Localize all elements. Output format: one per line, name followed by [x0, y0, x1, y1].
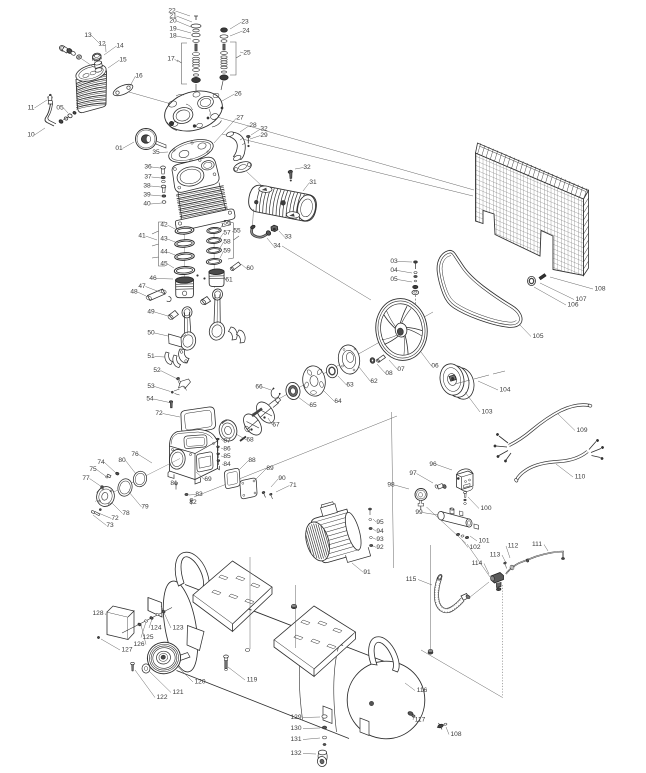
- svg-text:94: 94: [376, 528, 384, 535]
- svg-text:122: 122: [156, 694, 167, 701]
- svg-text:66: 66: [255, 383, 263, 390]
- svg-text:76: 76: [131, 451, 139, 458]
- svg-text:85: 85: [223, 453, 231, 460]
- svg-text:56: 56: [223, 219, 231, 226]
- svg-text:64: 64: [334, 398, 342, 405]
- svg-text:113: 113: [490, 551, 501, 558]
- svg-text:08: 08: [385, 370, 393, 377]
- svg-text:77: 77: [82, 475, 90, 482]
- svg-text:132: 132: [290, 750, 301, 757]
- svg-text:108: 108: [450, 731, 461, 738]
- svg-text:130: 130: [290, 725, 301, 732]
- svg-text:60: 60: [246, 265, 254, 272]
- svg-text:04: 04: [390, 267, 398, 274]
- svg-text:20: 20: [169, 17, 177, 24]
- svg-text:110: 110: [575, 473, 586, 480]
- svg-text:05: 05: [390, 276, 398, 283]
- svg-text:16: 16: [135, 72, 143, 79]
- svg-text:27: 27: [236, 114, 244, 121]
- svg-text:49: 49: [147, 308, 155, 315]
- svg-text:24: 24: [242, 27, 250, 34]
- svg-text:06: 06: [431, 362, 439, 369]
- svg-text:39: 39: [143, 191, 151, 198]
- svg-text:120: 120: [194, 678, 205, 685]
- svg-text:78: 78: [122, 510, 130, 517]
- svg-text:38: 38: [143, 182, 151, 189]
- svg-text:93: 93: [376, 536, 384, 543]
- svg-text:46: 46: [149, 275, 157, 282]
- svg-text:53: 53: [147, 383, 155, 390]
- svg-text:124: 124: [150, 624, 161, 631]
- svg-text:116: 116: [417, 687, 428, 694]
- svg-text:107: 107: [575, 296, 586, 303]
- svg-text:98: 98: [387, 481, 395, 488]
- svg-text:86: 86: [223, 445, 231, 452]
- svg-text:111: 111: [532, 541, 542, 548]
- svg-text:112: 112: [508, 542, 519, 549]
- svg-text:51: 51: [147, 353, 155, 360]
- svg-text:10: 10: [27, 131, 35, 138]
- svg-text:44: 44: [160, 248, 168, 255]
- svg-text:42: 42: [160, 221, 168, 228]
- svg-text:102: 102: [469, 544, 480, 551]
- svg-text:127: 127: [121, 646, 132, 653]
- svg-text:28: 28: [249, 122, 257, 129]
- svg-text:41: 41: [138, 232, 146, 239]
- svg-text:95: 95: [376, 519, 384, 526]
- svg-text:87: 87: [223, 437, 231, 444]
- svg-text:97: 97: [409, 470, 417, 477]
- svg-text:100: 100: [480, 505, 491, 512]
- svg-text:82: 82: [189, 499, 197, 506]
- svg-text:43: 43: [160, 235, 168, 242]
- svg-text:19: 19: [169, 25, 177, 32]
- svg-text:62: 62: [370, 378, 378, 385]
- svg-text:80: 80: [118, 457, 126, 464]
- svg-text:13: 13: [84, 32, 92, 39]
- svg-text:72: 72: [155, 410, 163, 417]
- svg-text:12: 12: [98, 40, 106, 47]
- svg-text:115: 115: [406, 576, 417, 583]
- svg-text:14: 14: [116, 42, 124, 49]
- svg-text:31: 31: [309, 179, 317, 186]
- svg-text:47: 47: [138, 283, 146, 290]
- svg-text:109: 109: [576, 427, 587, 434]
- svg-text:72: 72: [111, 515, 119, 522]
- svg-text:103: 103: [481, 408, 492, 415]
- svg-text:84: 84: [223, 461, 231, 468]
- svg-text:40: 40: [143, 200, 151, 207]
- svg-text:104: 104: [499, 386, 510, 393]
- svg-text:50: 50: [147, 329, 155, 336]
- svg-text:32: 32: [303, 164, 311, 171]
- svg-text:48: 48: [130, 288, 138, 295]
- svg-text:67: 67: [272, 421, 280, 428]
- svg-text:83: 83: [195, 491, 203, 498]
- svg-text:114: 114: [472, 560, 483, 567]
- svg-text:96: 96: [429, 461, 437, 468]
- svg-text:121: 121: [172, 689, 183, 696]
- svg-text:63: 63: [346, 381, 354, 388]
- svg-text:74: 74: [97, 459, 105, 466]
- svg-text:33: 33: [284, 233, 292, 240]
- svg-text:105: 105: [532, 333, 543, 340]
- svg-text:90: 90: [278, 475, 286, 482]
- svg-text:89: 89: [266, 465, 274, 472]
- svg-text:54: 54: [146, 395, 154, 402]
- svg-text:131: 131: [290, 736, 301, 743]
- svg-text:58: 58: [223, 238, 231, 245]
- svg-text:17: 17: [167, 55, 175, 62]
- svg-text:108: 108: [594, 285, 605, 292]
- svg-text:126: 126: [133, 641, 144, 648]
- svg-text:88: 88: [248, 457, 256, 464]
- svg-text:11: 11: [28, 104, 35, 111]
- svg-text:05: 05: [56, 104, 64, 111]
- svg-text:01: 01: [115, 145, 123, 152]
- svg-text:69: 69: [204, 476, 212, 483]
- svg-text:91: 91: [363, 569, 371, 576]
- svg-text:99: 99: [415, 509, 423, 516]
- svg-text:119: 119: [247, 676, 258, 683]
- svg-text:57: 57: [223, 229, 231, 236]
- svg-text:15: 15: [119, 56, 127, 63]
- svg-text:92: 92: [376, 544, 384, 551]
- svg-text:26: 26: [234, 90, 242, 97]
- svg-text:25: 25: [243, 49, 251, 56]
- svg-text:07: 07: [397, 366, 405, 373]
- svg-text:23: 23: [241, 18, 249, 25]
- svg-text:52: 52: [153, 367, 161, 374]
- svg-text:35: 35: [152, 149, 160, 156]
- svg-text:128: 128: [92, 610, 103, 617]
- svg-text:18: 18: [169, 32, 177, 39]
- svg-text:03: 03: [390, 258, 398, 265]
- svg-text:36: 36: [144, 163, 152, 170]
- svg-text:37: 37: [144, 173, 152, 180]
- svg-text:55: 55: [233, 227, 241, 234]
- svg-text:59: 59: [223, 247, 231, 254]
- svg-text:129: 129: [290, 714, 301, 721]
- svg-text:123: 123: [172, 624, 183, 631]
- svg-text:61: 61: [225, 276, 233, 283]
- svg-text:71: 71: [289, 482, 297, 489]
- svg-text:29: 29: [260, 132, 268, 139]
- svg-text:65: 65: [309, 402, 317, 409]
- svg-text:73: 73: [106, 522, 114, 529]
- svg-text:68: 68: [246, 436, 254, 443]
- svg-text:81: 81: [170, 480, 178, 487]
- svg-text:34: 34: [273, 242, 281, 249]
- svg-text:79: 79: [141, 503, 149, 510]
- svg-text:117: 117: [415, 716, 426, 723]
- svg-text:75: 75: [89, 466, 97, 473]
